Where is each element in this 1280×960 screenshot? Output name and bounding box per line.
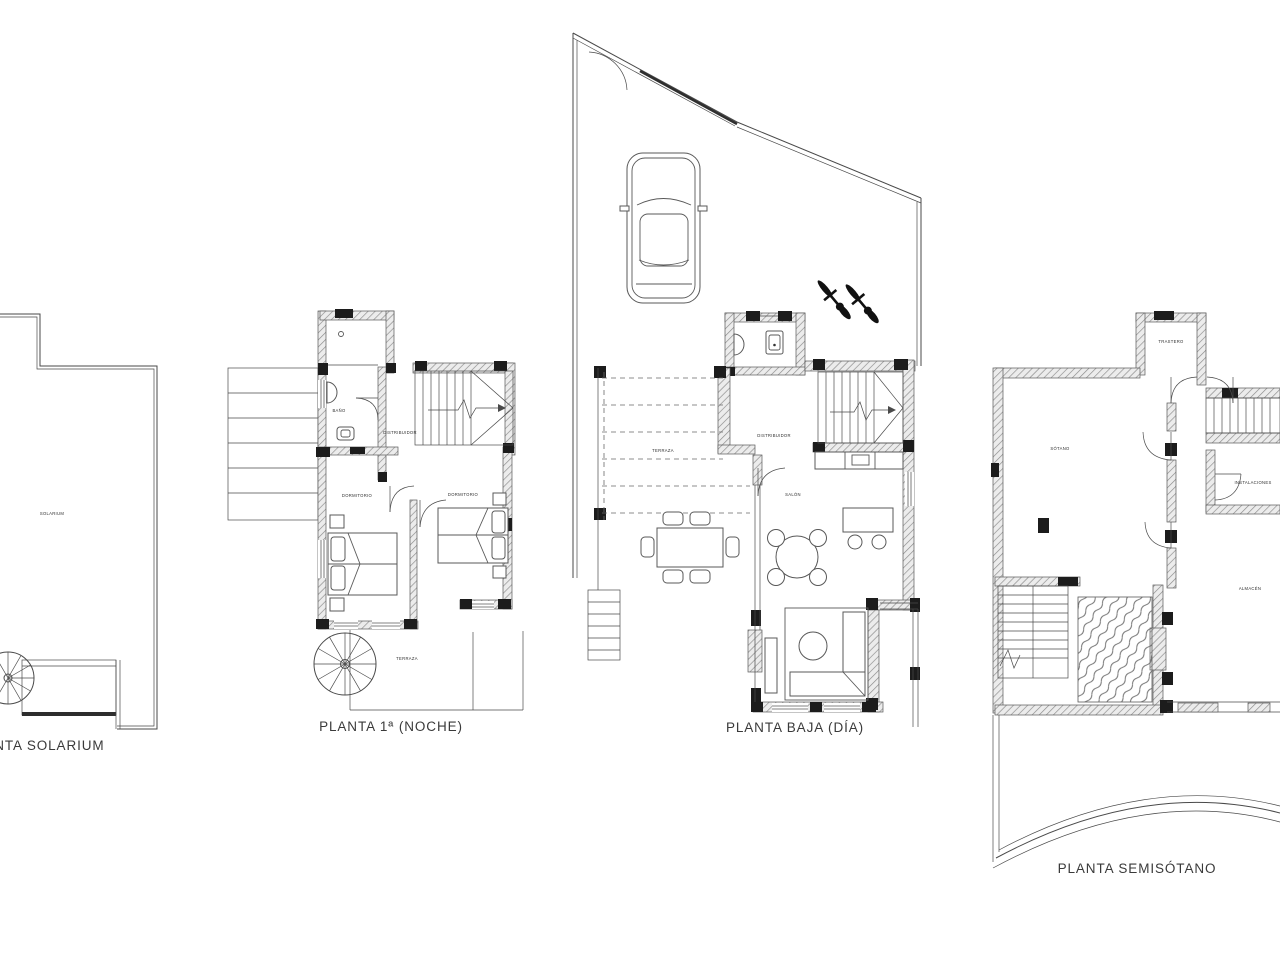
chair	[690, 512, 710, 525]
stool	[848, 535, 862, 549]
toilet-icon	[337, 427, 354, 440]
solarium-outer-wall	[0, 314, 157, 729]
shower-drain-icon	[339, 332, 344, 337]
column	[1038, 518, 1049, 533]
sink-icon	[327, 382, 337, 403]
toilet-icon	[734, 334, 744, 355]
plan-ground-floor: TERRAZA DISTRIBUIDOR SALÓN PLANTA BAJA (…	[573, 33, 921, 735]
nightstand	[330, 598, 344, 611]
plan-first-floor: BAÑO DISTRIBUIDOR DORMITORIO DORMITORIO …	[228, 309, 523, 734]
chair	[810, 569, 827, 586]
nightstand	[330, 515, 344, 528]
wc-room	[723, 311, 805, 376]
chair	[768, 569, 785, 586]
car-icon	[620, 153, 707, 303]
chair	[641, 537, 654, 557]
solarium-terrace-strip	[22, 660, 120, 729]
chair	[663, 512, 683, 525]
chair	[663, 570, 683, 583]
living-room	[765, 608, 868, 700]
hatched-ramp	[1078, 597, 1152, 702]
chair	[690, 570, 710, 583]
round-table	[768, 530, 827, 586]
driveway-arcs	[993, 715, 1280, 868]
louvered-roof	[228, 368, 318, 520]
staircase-icon	[415, 371, 513, 445]
coffee-table	[799, 632, 827, 660]
room-label-distribuidor: DISTRIBUIDOR	[383, 430, 417, 435]
basement-stair	[998, 586, 1068, 678]
exterior-steps	[588, 590, 620, 660]
solarium-inner-wall	[0, 317, 154, 726]
room-label-almacen: ALMACÉN	[1239, 586, 1261, 591]
staircase-icon	[1206, 398, 1280, 433]
bathroom	[327, 332, 354, 441]
chair	[768, 530, 785, 547]
spiral-staircase-icon	[314, 633, 376, 695]
room-label-bano: BAÑO	[332, 408, 346, 413]
double-bed-left	[328, 515, 397, 611]
room-label-terraza: TERRAZA	[396, 656, 418, 661]
plan-solarium: SOLARIUM PLANTA SOLARIUM	[0, 314, 157, 753]
plan-title-solarium: PLANTA SOLARIUM	[0, 738, 105, 753]
chair	[726, 537, 739, 557]
chair	[810, 530, 827, 547]
room-label-dormitorio-right: DORMITORIO	[448, 492, 479, 497]
door-arcs	[356, 398, 446, 527]
staircase-icon	[818, 372, 903, 443]
bicycles-icon	[812, 275, 884, 328]
stool	[872, 535, 886, 549]
plan-basement: TRASTERO SÓTANO INSTALACIONES ALMACÉN PL…	[991, 311, 1280, 876]
room-label-sotano: SÓTANO	[1050, 446, 1070, 451]
kitchen-island	[843, 508, 893, 532]
gate-arc	[589, 52, 627, 90]
outdoor-dining-table	[641, 512, 739, 583]
plot-boundary	[573, 33, 921, 578]
plan-title-ground-floor: PLANTA BAJA (DÍA)	[726, 720, 864, 735]
floor-plan-sheet: SOLARIUM PLANTA SOLARIUM	[0, 0, 1280, 960]
double-bed-right	[438, 493, 508, 578]
floor-plan-drawing: SOLARIUM PLANTA SOLARIUM	[0, 0, 1280, 960]
sideboard	[765, 638, 777, 693]
room-label-distribuidor: DISTRIBUIDOR	[757, 433, 791, 438]
nightstand	[493, 493, 506, 505]
door-arcs	[1143, 377, 1241, 548]
first-floor-terrace	[350, 630, 523, 710]
room-label-instalaciones: INSTALACIONES	[1234, 480, 1271, 485]
nightstand	[493, 566, 506, 578]
room-label-salon: SALÓN	[785, 492, 801, 497]
room-label-solarium: SOLARIUM	[40, 511, 64, 516]
kitchen-counter	[815, 452, 903, 469]
plan-title-first-floor: PLANTA 1ª (NOCHE)	[319, 719, 463, 734]
room-label-trastero: TRASTERO	[1158, 339, 1184, 344]
plan-title-basement: PLANTA SEMISÓTANO	[1058, 861, 1217, 876]
kitchen	[815, 452, 903, 549]
room-label-dormitorio-left: DORMITORIO	[342, 493, 373, 498]
room-label-terraza: TERRAZA	[652, 448, 674, 453]
